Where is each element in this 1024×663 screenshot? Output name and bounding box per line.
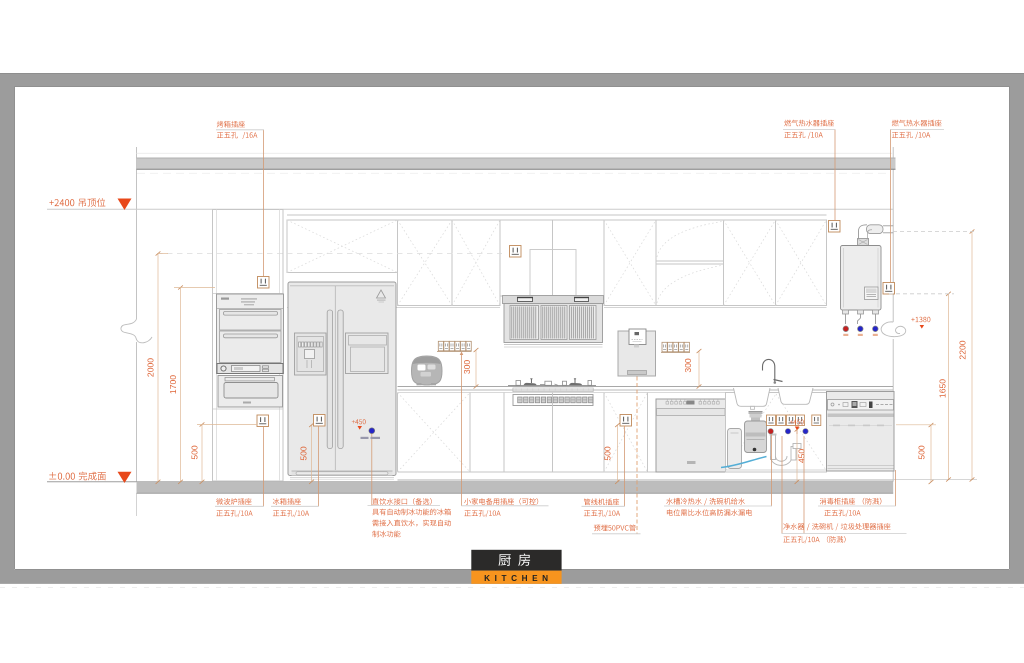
svg-text:2200: 2200 [958,340,968,359]
svg-text:500: 500 [603,446,613,461]
svg-text:1650: 1650 [938,379,948,398]
svg-text:KITCHEN: KITCHEN [484,574,553,583]
svg-text:2000: 2000 [146,358,156,377]
svg-text:1700: 1700 [168,375,178,394]
svg-text:300: 300 [683,358,693,373]
svg-text:500: 500 [190,445,200,460]
svg-text:450: 450 [797,449,807,464]
svg-text:300: 300 [462,360,472,375]
svg-text:500: 500 [299,446,309,461]
svg-text:500: 500 [917,445,927,460]
